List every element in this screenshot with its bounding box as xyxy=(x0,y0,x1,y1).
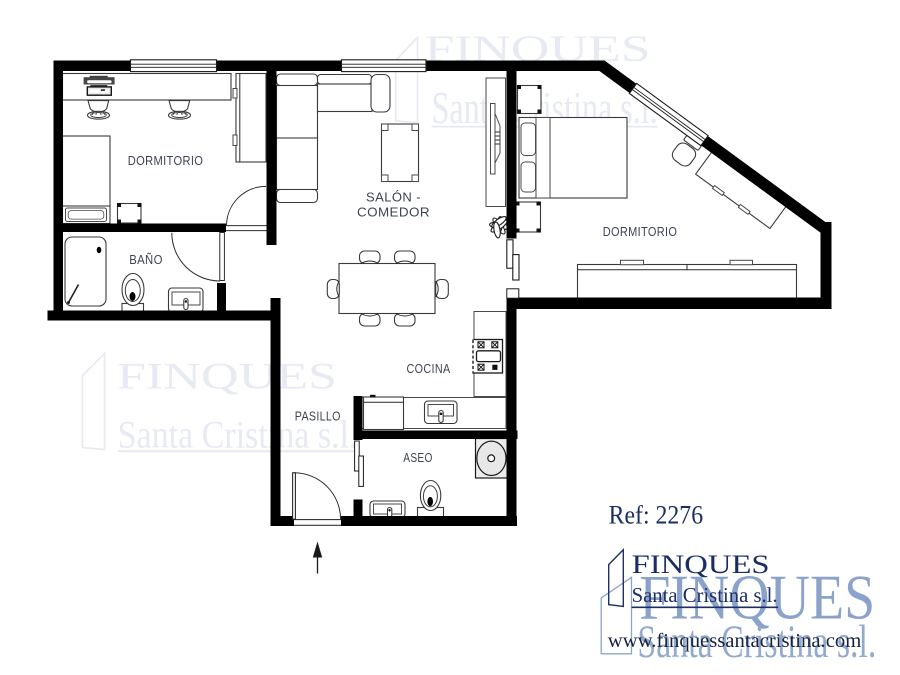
svg-text:DORMITORIO: DORMITORIO xyxy=(128,153,204,168)
svg-text:SALÓN -: SALÓN - xyxy=(366,190,421,205)
svg-text:COMEDOR: COMEDOR xyxy=(357,205,430,220)
svg-text:ASEO: ASEO xyxy=(403,450,433,465)
svg-text:Santa Cristina s.l.: Santa Cristina s.l. xyxy=(632,583,778,607)
svg-text:FINQUES: FINQUES xyxy=(632,550,770,579)
svg-text:FINQUES: FINQUES xyxy=(117,356,337,397)
svg-text:DORMITORIO: DORMITORIO xyxy=(603,224,678,239)
svg-text:Ref: 2276: Ref: 2276 xyxy=(609,501,704,530)
svg-text:www.finquessantacristina.com: www.finquessantacristina.com xyxy=(608,630,862,652)
svg-text:PASILLO: PASILLO xyxy=(295,408,341,423)
svg-text:BAÑO: BAÑO xyxy=(129,252,163,267)
svg-text:COCINA: COCINA xyxy=(407,361,451,376)
